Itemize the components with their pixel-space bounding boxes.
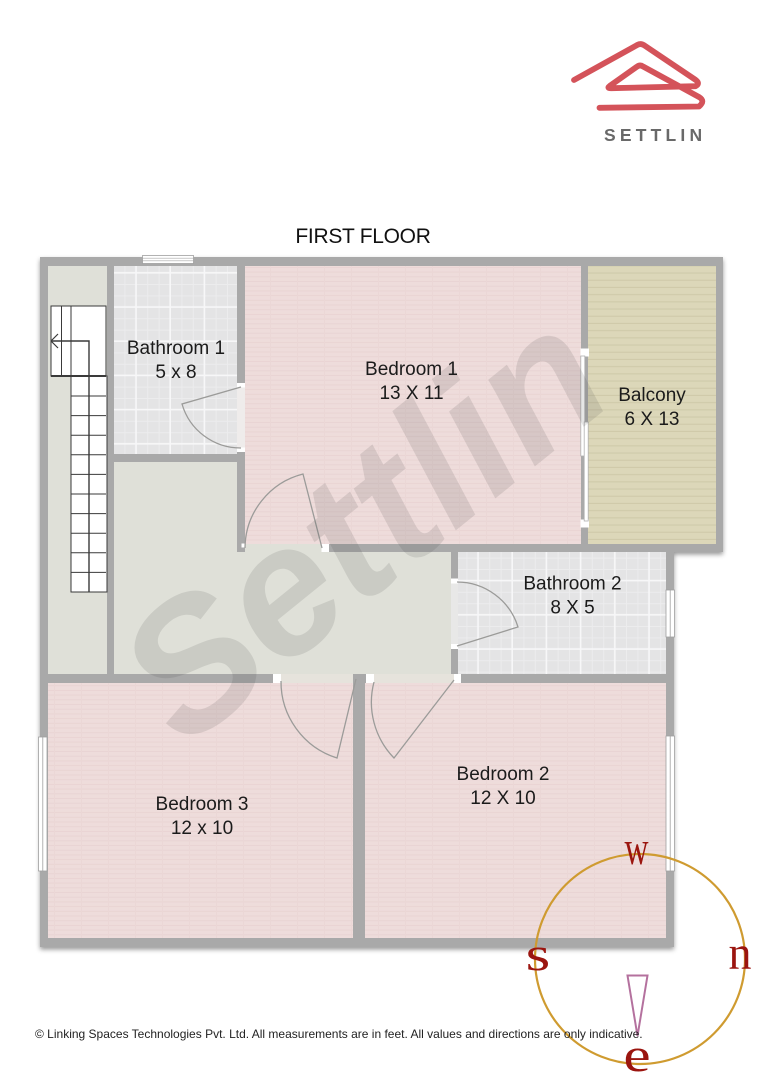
svg-text:s: s [526,928,551,981]
svg-text:6 X 13: 6 X 13 [625,409,680,430]
svg-text:Bathroom 1: Bathroom 1 [127,338,225,359]
svg-text:12 x 10: 12 x 10 [171,818,233,839]
svg-text:© Linking Spaces Technologies: © Linking Spaces Technologies Pvt. Ltd. … [35,1027,643,1041]
svg-text:FIRST FLOOR: FIRST FLOOR [295,225,430,248]
svg-text:5 x 8: 5 x 8 [155,362,196,383]
svg-text:8 X 5: 8 X 5 [550,598,594,619]
svg-text:SETTLIN: SETTLIN [604,125,706,145]
svg-text:n: n [729,927,752,980]
svg-text:12 X 10: 12 X 10 [470,788,536,809]
svg-text:Bathroom 2: Bathroom 2 [523,574,621,595]
svg-text:Bedroom 2: Bedroom 2 [457,764,550,785]
svg-text:w: w [625,822,649,875]
svg-text:Balcony: Balcony [618,385,686,406]
svg-text:Bedroom 1: Bedroom 1 [365,359,458,380]
svg-text:Bedroom 3: Bedroom 3 [156,794,249,815]
svg-text:13 X 11: 13 X 11 [379,383,443,404]
